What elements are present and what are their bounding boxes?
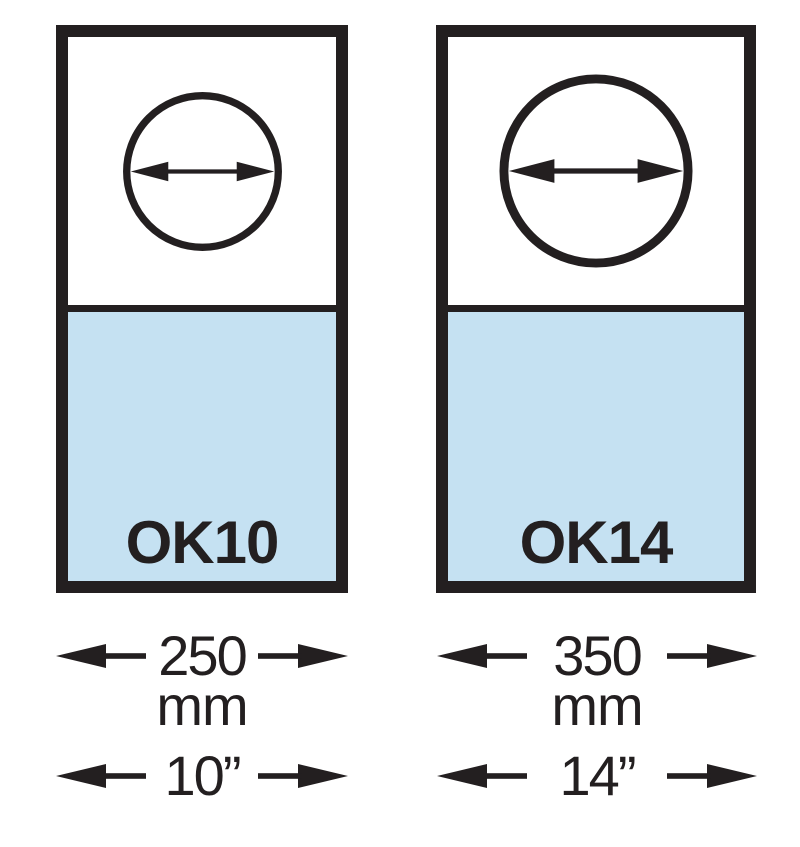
dim-value-ok10-inch: 10” (165, 748, 240, 804)
diameter-arrow-icon (497, 72, 695, 270)
panel-ok10-lower-section: OK10 (68, 312, 336, 581)
dim-row-ok10-inch: 10” (56, 750, 348, 802)
dim-row-ok14-inch: 14” (437, 750, 757, 802)
panel-ok14-upper-section (448, 37, 744, 305)
diameter-arrow-icon (121, 90, 284, 253)
arrow-left-icon (56, 642, 146, 670)
dim-unit-ok10: mm (56, 678, 348, 734)
dim-value-ok14-inch: 14” (560, 748, 635, 804)
arrow-left-icon (56, 762, 146, 790)
dim-unit-ok14: mm (437, 678, 757, 734)
arrow-right-icon (667, 642, 757, 670)
arrow-left-icon (437, 642, 527, 670)
model-label-ok14: OK14 (520, 513, 673, 581)
size-comparison-diagram: OK10 OK14 250 mm (0, 0, 800, 847)
model-label-ok10: OK10 (126, 513, 279, 581)
panel-divider (448, 305, 744, 312)
arrow-right-icon (667, 762, 757, 790)
arrow-right-icon (258, 642, 348, 670)
arrow-right-icon (258, 762, 348, 790)
panel-ok14-lower-section: OK14 (448, 312, 744, 581)
panel-ok14: OK14 (436, 25, 756, 593)
panel-ok10-upper-section (68, 37, 336, 305)
panel-ok10: OK10 (56, 25, 348, 593)
arrow-left-icon (437, 762, 527, 790)
panel-divider (68, 305, 336, 312)
